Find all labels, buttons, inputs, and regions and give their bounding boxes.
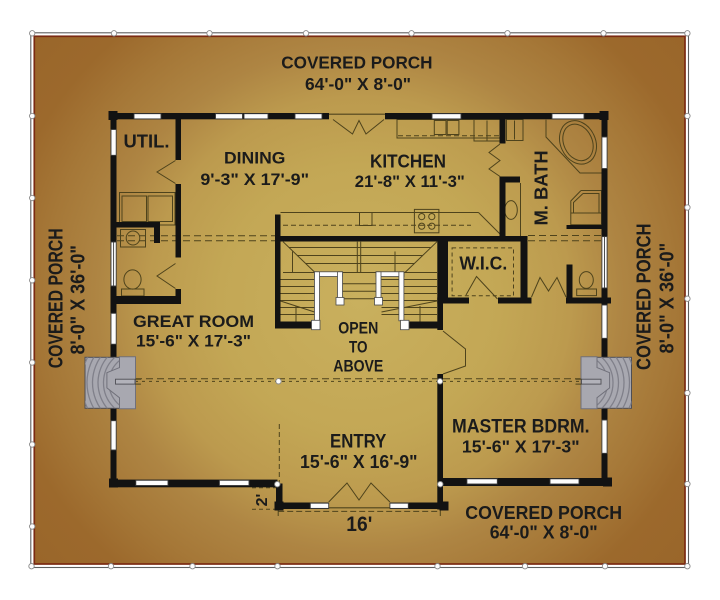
svg-text:COVERED PORCH: COVERED PORCH <box>465 503 622 523</box>
svg-text:ABOVE: ABOVE <box>333 358 383 376</box>
svg-text:M. BATH: M. BATH <box>531 150 552 225</box>
svg-text:2': 2' <box>254 494 271 507</box>
svg-text:UTIL.: UTIL. <box>124 132 170 152</box>
svg-text:64'-0" X 8'-0": 64'-0" X 8'-0" <box>305 74 411 94</box>
svg-text:MASTER BDRM.: MASTER BDRM. <box>452 417 590 438</box>
svg-text:TO: TO <box>349 338 368 356</box>
svg-text:GREAT ROOM: GREAT ROOM <box>133 313 254 331</box>
svg-text:ENTRY: ENTRY <box>330 431 387 452</box>
svg-text:COVERED PORCH: COVERED PORCH <box>45 228 67 368</box>
svg-text:15'-6" X 16'-9": 15'-6" X 16'-9" <box>300 452 418 472</box>
svg-text:DINING: DINING <box>224 149 285 168</box>
svg-text:21'-8" X 11'-3": 21'-8" X 11'-3" <box>355 172 465 191</box>
svg-text:OPEN: OPEN <box>338 319 378 337</box>
svg-text:8'-0" X 36'-0": 8'-0" X 36'-0" <box>67 245 90 355</box>
svg-text:64'-0" X 8'-0": 64'-0" X 8'-0" <box>490 522 598 542</box>
svg-text:KITCHEN: KITCHEN <box>370 152 446 172</box>
svg-text:15'-6" X 17'-3": 15'-6" X 17'-3" <box>136 332 251 350</box>
svg-text:COVERED PORCH: COVERED PORCH <box>281 53 432 73</box>
svg-text:W.I.C.: W.I.C. <box>459 253 507 274</box>
svg-text:15'-6" X 17'-3": 15'-6" X 17'-3" <box>462 436 580 456</box>
svg-text:8'-0" X 36'-0": 8'-0" X 36'-0" <box>656 243 679 354</box>
svg-text:COVERED PORCH: COVERED PORCH <box>634 223 656 370</box>
svg-text:9'-3" X 17'-9": 9'-3" X 17'-9" <box>200 170 309 189</box>
svg-text:16': 16' <box>346 513 372 536</box>
